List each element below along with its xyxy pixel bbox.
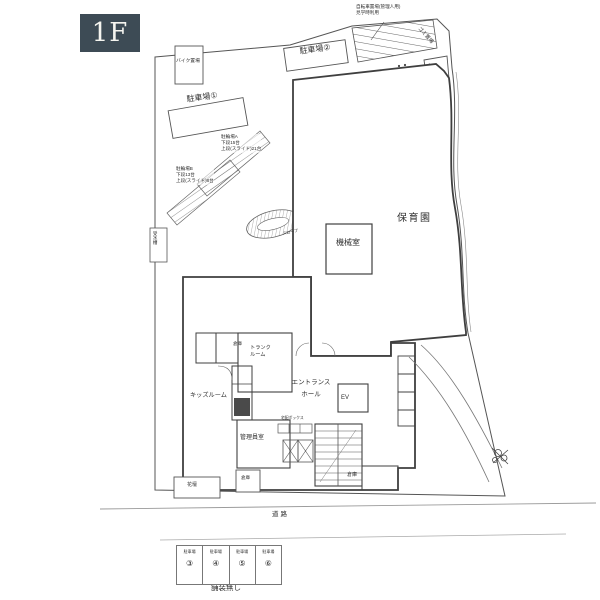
approach-path [421,345,502,468]
parking-stall: 駐車場③ [177,546,203,584]
parking-stall-number: ③ [186,559,193,568]
parking-stall: 駐車場⑤ [230,546,256,584]
machine-room-box [326,224,372,274]
shaft [234,398,250,416]
road-line-2 [160,534,566,540]
label-kids-room: キッズルーム [190,392,227,400]
label-storage-3: 倉庫 [241,475,250,481]
label-nursery: 保育園 [397,212,432,226]
label-storage-1: 倉庫 [233,341,242,347]
label-note-top: 自転車置場(管理人用) 見学時利用 [356,4,400,16]
label-bike-storage: バイク置場 [176,59,200,65]
label-flower-bed: 花壇 [187,482,197,489]
shrub-symbol [492,448,508,464]
parking-stall-label: 駐車場 [236,549,248,555]
label-manager-room: 管理員室 [240,434,264,442]
siteplan-drawing [0,0,600,600]
label-entrance-hall: エントランス ホール [289,377,333,402]
parking-1-stall [168,98,248,139]
parking-stall-number: ⑥ [265,559,272,568]
parking-stall-number: ④ [212,559,219,568]
floorplan-canvas: 1F [0,0,600,600]
parking-stall-label: 駐車場 [262,549,274,555]
exterior-stairs [352,20,437,62]
parking-stall: 駐車場⑥ [256,546,281,584]
label-machine-room: 機械室 [336,238,360,249]
label-delivery-box: 宅配ボックス [281,416,304,421]
label-road: 道路 [272,511,289,520]
parking-stall: 駐車場④ [203,546,229,584]
parking-stalls: 駐車場③駐車場④駐車場⑤駐車場⑥ [176,545,282,585]
label-bike-rack-a: 駐輪場A 下段15台 上段(スライド)21台 [221,134,261,153]
nursery-building [293,64,466,356]
parking-stall-number: ⑤ [239,559,246,568]
label-trunk-room: トランク ルーム [250,345,271,359]
label-ev: EV [341,394,349,402]
parking-stall-label: 駐車場 [210,549,222,555]
parking-stall-label: 駐車場 [184,549,196,555]
road-line-1 [100,503,596,509]
label-water-tank: 受水槽 [152,231,158,245]
label-storage-2: 倉庫 [347,472,357,479]
label-bike-rack-b: 駐輪場B 下段13台 上段(スライド)8台 [176,166,214,185]
